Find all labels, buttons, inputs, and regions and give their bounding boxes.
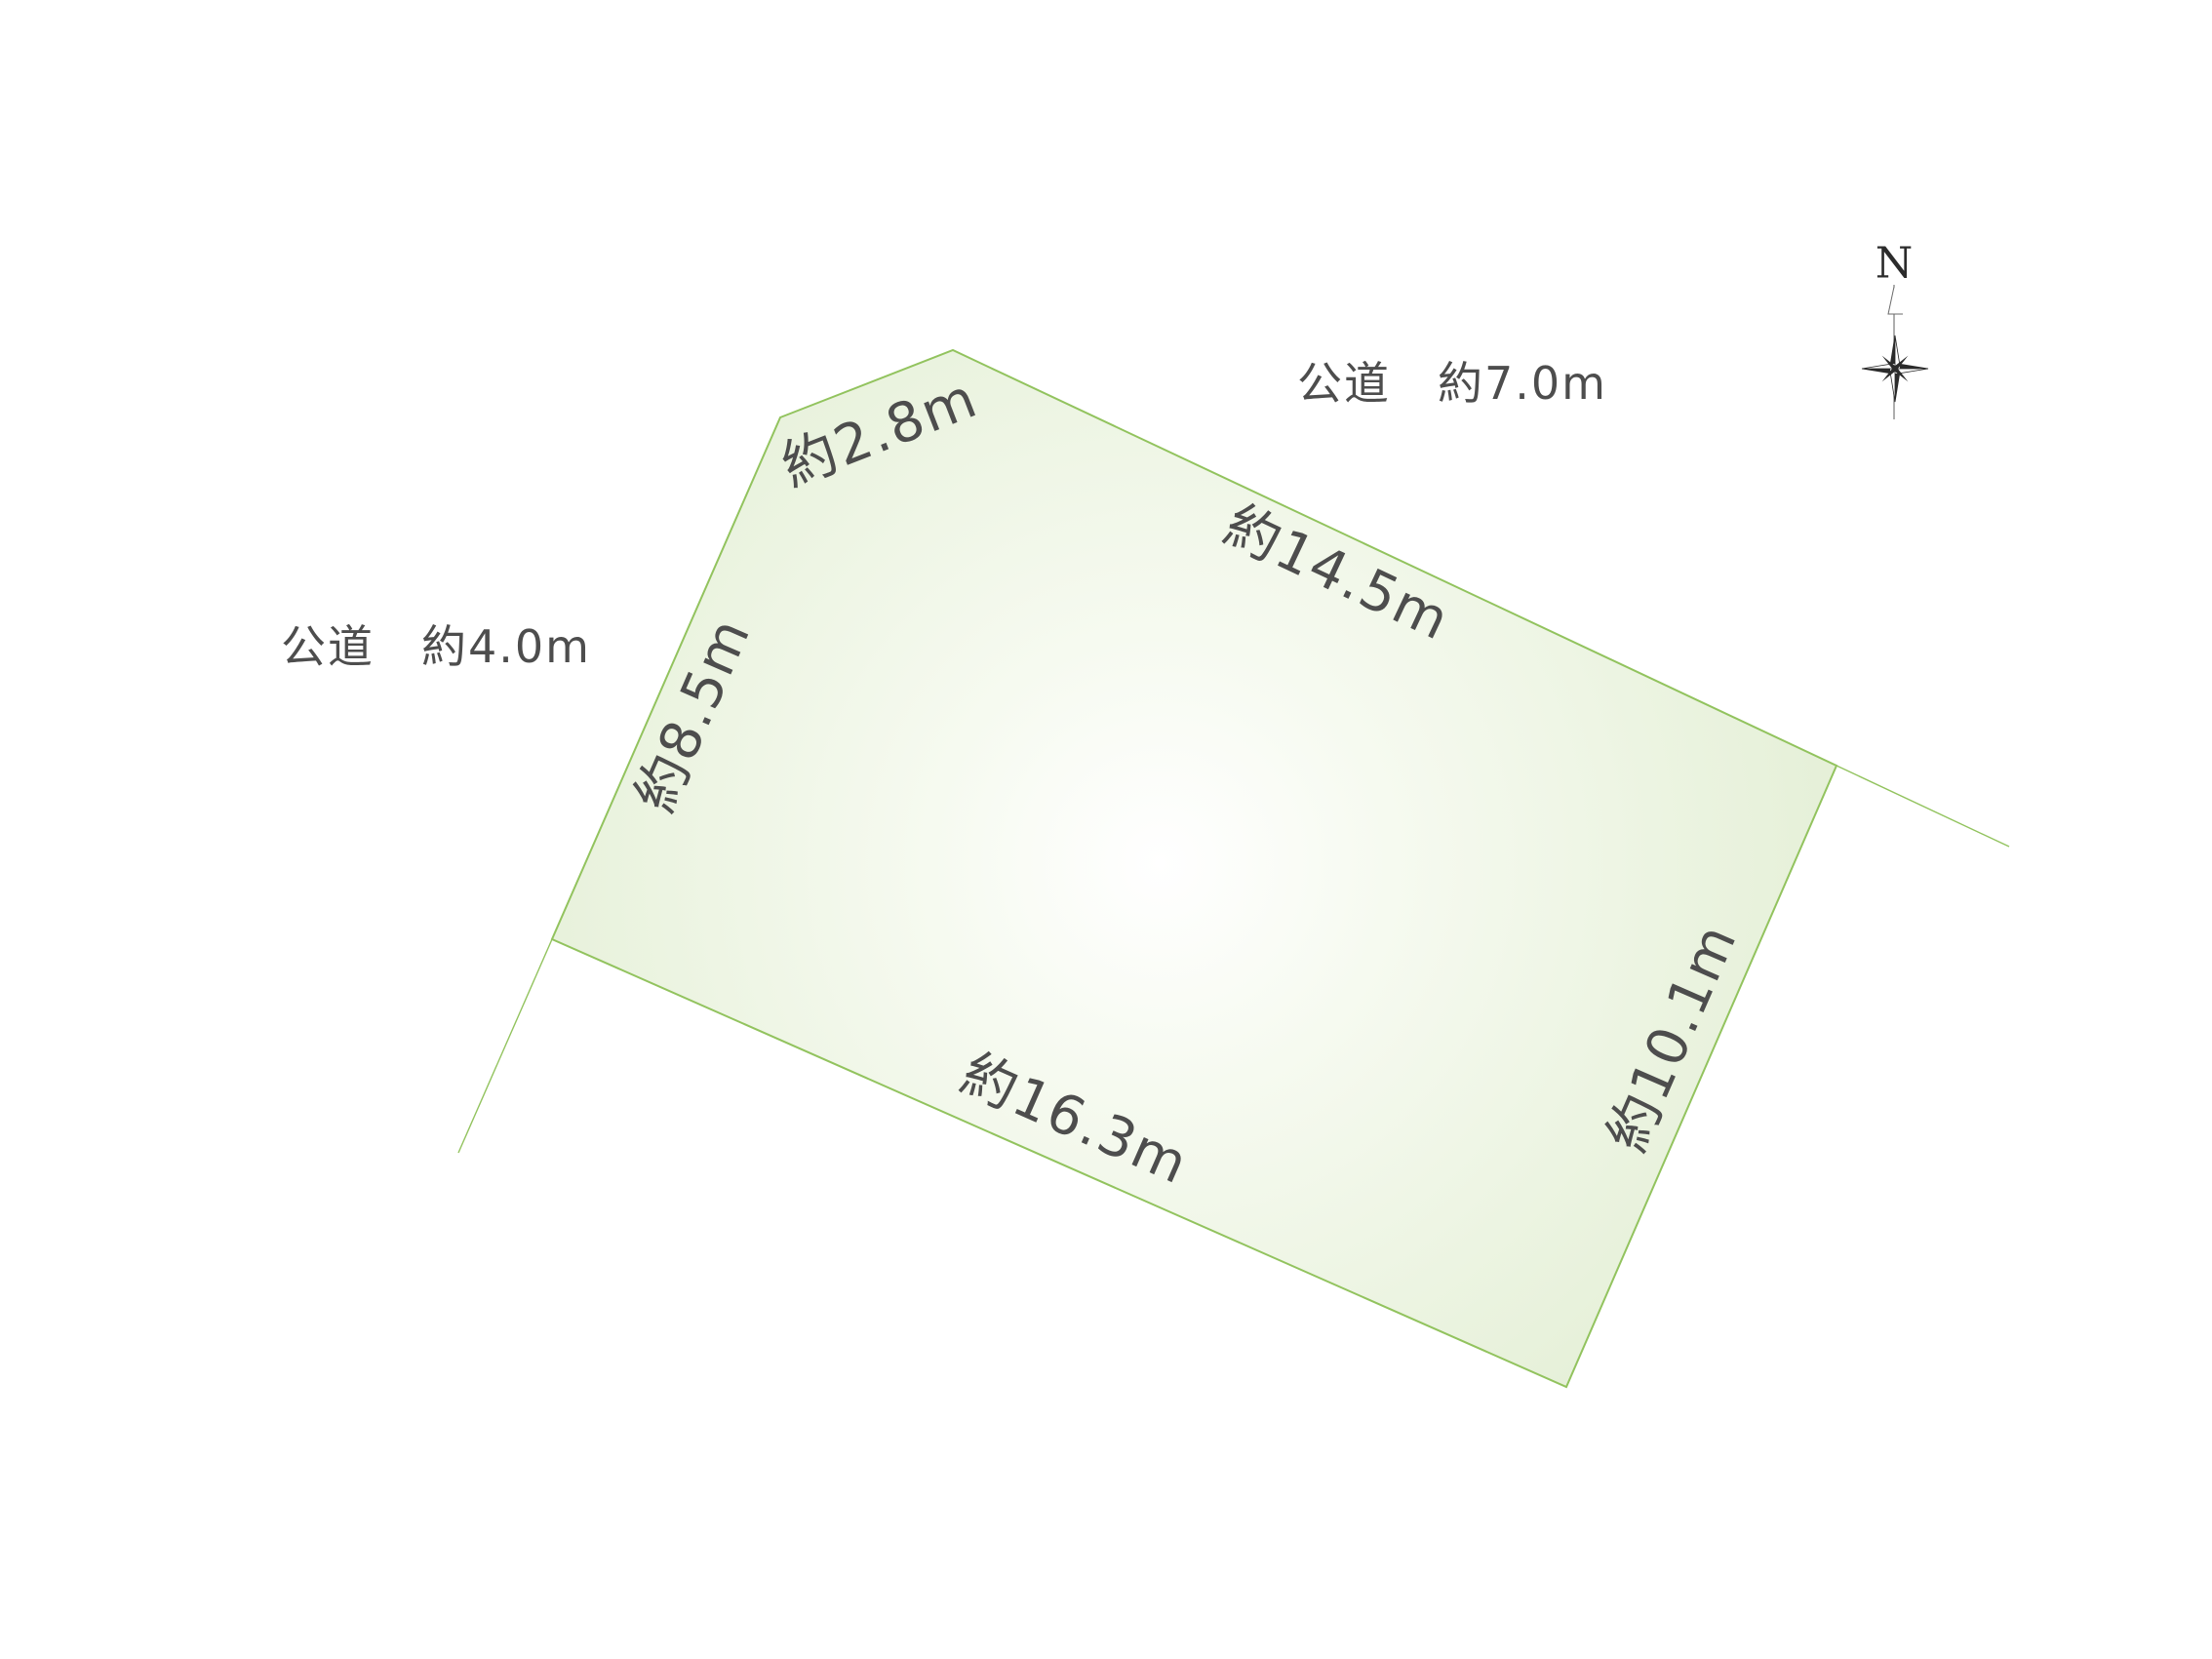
land-plot-diagram-page: 約2.8m 約14.5m 約8.5m 約16.3m 約10.1m 公道 約7.0… (0, 0, 2212, 1659)
boundary-extension-line-east (1837, 766, 2009, 847)
road-label-north: 公道 約7.0m (1297, 357, 1607, 410)
boundary-extension-line-southwest (458, 939, 552, 1153)
land-parcel (552, 350, 1837, 1387)
land-plot-diagram: 約2.8m 約14.5m 約8.5m 約16.3m 約10.1m 公道 約7.0… (0, 0, 2212, 1659)
compass-needle-pennant (1888, 287, 1903, 314)
compass: N (1862, 239, 1928, 420)
road-label-west: 公道 約4.0m (281, 620, 591, 673)
compass-north-label: N (1876, 239, 1914, 289)
